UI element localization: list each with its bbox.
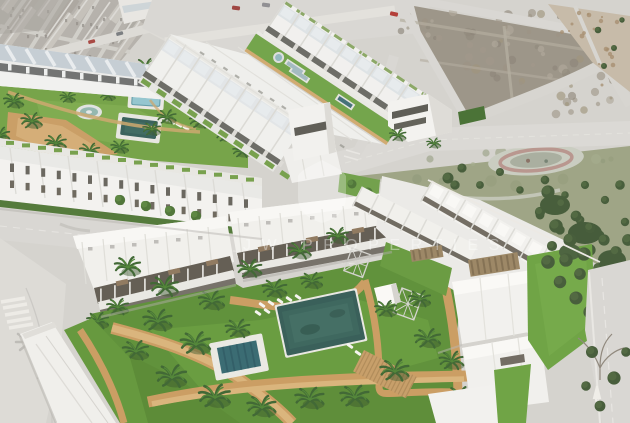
- svg-text:JW PROPERTIES: JW PROPERTIES: [243, 237, 510, 254]
